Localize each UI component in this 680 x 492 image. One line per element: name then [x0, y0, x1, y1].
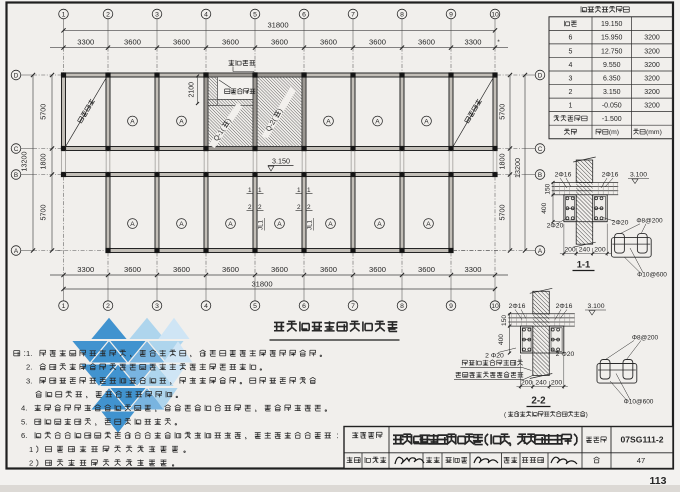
svg-text:2Φ16: 2Φ16: [602, 172, 619, 179]
svg-text:150: 150: [501, 315, 508, 326]
svg-text:(mm): (mm): [646, 129, 662, 136]
svg-text:1: 1: [258, 187, 262, 194]
svg-text:A: A: [424, 118, 429, 125]
svg-text:47: 47: [637, 456, 645, 465]
svg-text:13200: 13200: [20, 152, 29, 172]
svg-text:Φ10@600: Φ10@600: [624, 399, 654, 406]
svg-text:2 Φ20: 2 Φ20: [556, 351, 575, 358]
svg-text:JL1: JL1: [257, 219, 264, 230]
svg-text:200: 200: [564, 247, 576, 254]
svg-text:3300: 3300: [465, 38, 482, 47]
svg-text:A: A: [179, 221, 184, 228]
svg-text:A: A: [130, 118, 135, 125]
svg-text:5.: 5.: [21, 417, 27, 426]
svg-text:200: 200: [521, 380, 533, 387]
svg-text:6: 6: [569, 35, 573, 42]
svg-text:2: 2: [258, 204, 262, 211]
svg-text:3.150: 3.150: [603, 89, 621, 96]
svg-text:A: A: [377, 221, 382, 228]
svg-text:3600: 3600: [173, 38, 190, 47]
svg-text:3200: 3200: [644, 62, 660, 69]
svg-text:4: 4: [204, 11, 208, 18]
svg-text:6.350: 6.350: [603, 75, 621, 82]
svg-text:3300: 3300: [77, 265, 94, 274]
svg-text:5: 5: [253, 303, 257, 310]
svg-text:9: 9: [449, 303, 453, 310]
svg-text:D: D: [14, 72, 19, 79]
svg-text:1-1: 1-1: [577, 259, 591, 270]
svg-text:3600: 3600: [124, 38, 141, 47]
svg-text:Φ10@600: Φ10@600: [637, 272, 667, 279]
svg-text:3.100: 3.100: [587, 303, 604, 310]
svg-text:3600: 3600: [320, 265, 337, 274]
svg-text:3200: 3200: [644, 35, 660, 42]
svg-text:2: 2: [307, 204, 311, 211]
svg-text:3300: 3300: [465, 265, 482, 274]
svg-text:2Φ20: 2Φ20: [612, 220, 629, 227]
svg-text:3600: 3600: [124, 265, 141, 274]
svg-text:3: 3: [155, 11, 159, 18]
svg-text:2.: 2.: [26, 363, 32, 372]
svg-text:200: 200: [551, 380, 563, 387]
svg-text:31800: 31800: [267, 20, 288, 29]
svg-text:A: A: [228, 221, 233, 228]
svg-text:1: 1: [29, 445, 33, 454]
svg-text:3200: 3200: [644, 75, 660, 82]
svg-text:5700: 5700: [39, 104, 48, 120]
svg-text:10: 10: [491, 303, 499, 310]
svg-text:A: A: [277, 221, 282, 228]
svg-text:A: A: [375, 118, 380, 125]
svg-text:1: 1: [297, 187, 301, 194]
svg-text:2Φ16: 2Φ16: [555, 172, 572, 179]
svg-text:3200: 3200: [644, 48, 660, 55]
svg-text:): ): [586, 411, 588, 418]
svg-text:3.100: 3.100: [630, 172, 647, 179]
svg-text:4: 4: [204, 303, 208, 310]
svg-text:3600: 3600: [222, 38, 239, 47]
svg-text:C: C: [14, 146, 19, 153]
svg-text:A: A: [426, 221, 431, 228]
svg-text:200: 200: [594, 247, 606, 254]
svg-text:2: 2: [106, 11, 110, 18]
svg-text:5700: 5700: [498, 104, 507, 120]
svg-text:JL1: JL1: [306, 219, 313, 230]
svg-text:1: 1: [569, 102, 573, 109]
svg-text:Φ8@200: Φ8@200: [632, 335, 659, 342]
svg-text:5: 5: [569, 48, 573, 55]
svg-text:3.: 3.: [26, 376, 32, 385]
svg-text:3200: 3200: [644, 102, 660, 109]
svg-text:2: 2: [569, 89, 573, 96]
svg-text:1.: 1.: [26, 349, 32, 358]
svg-text:5: 5: [253, 11, 257, 18]
svg-text:6.: 6.: [21, 431, 27, 440]
svg-text:2100: 2100: [189, 82, 196, 98]
svg-text:3600: 3600: [271, 265, 288, 274]
svg-text:3600: 3600: [369, 38, 386, 47]
svg-text:2Φ20: 2Φ20: [547, 223, 564, 230]
svg-text:1800: 1800: [39, 154, 48, 170]
svg-text:4: 4: [569, 62, 573, 69]
svg-text:2: 2: [29, 458, 33, 467]
svg-text:2: 2: [106, 303, 110, 310]
svg-text:B: B: [14, 172, 18, 179]
svg-text:Φ8@200: Φ8@200: [636, 217, 663, 224]
svg-text:5700: 5700: [498, 205, 507, 221]
svg-text:A: A: [14, 248, 19, 255]
svg-text:2: 2: [297, 204, 301, 211]
svg-text:2-2: 2-2: [531, 396, 546, 407]
svg-text:6: 6: [302, 303, 306, 310]
svg-text:4.: 4.: [21, 404, 27, 413]
svg-text:6: 6: [302, 11, 306, 18]
svg-text:5700: 5700: [39, 205, 48, 221]
svg-text:3600: 3600: [222, 265, 239, 274]
svg-text:A: A: [328, 221, 333, 228]
svg-text:400: 400: [541, 202, 548, 213]
svg-text:B: B: [538, 172, 542, 179]
svg-text:A: A: [326, 118, 331, 125]
svg-text:1: 1: [62, 11, 66, 18]
svg-text:-0.050: -0.050: [602, 102, 622, 109]
svg-text:13200: 13200: [513, 158, 522, 178]
svg-text:(m): (m): [609, 129, 619, 136]
svg-text:-1.500: -1.500: [602, 116, 622, 123]
svg-text:A: A: [179, 118, 184, 125]
svg-text:2Φ16: 2Φ16: [509, 303, 526, 310]
svg-text:9.550: 9.550: [603, 62, 621, 69]
svg-text:113: 113: [650, 475, 667, 487]
svg-text:3600: 3600: [271, 38, 288, 47]
svg-text:3300: 3300: [77, 38, 94, 47]
svg-text:A: A: [130, 221, 135, 228]
svg-text:240: 240: [535, 380, 547, 387]
svg-text:1: 1: [62, 303, 66, 310]
svg-text:400: 400: [498, 334, 505, 345]
svg-text:10: 10: [491, 11, 499, 18]
svg-text:8: 8: [400, 11, 404, 18]
svg-text:3600: 3600: [320, 38, 337, 47]
svg-text:2Φ16: 2Φ16: [556, 303, 573, 310]
svg-text:07SG111-2: 07SG111-2: [620, 435, 663, 445]
svg-text:19.150: 19.150: [601, 21, 623, 28]
svg-text:3600: 3600: [418, 265, 435, 274]
svg-text:150: 150: [545, 183, 552, 194]
svg-text:9: 9: [449, 11, 453, 18]
svg-text:C: C: [538, 146, 543, 153]
svg-text:2 Φ20: 2 Φ20: [485, 353, 504, 360]
svg-text:1: 1: [307, 187, 311, 194]
svg-text:A: A: [538, 248, 543, 255]
svg-text:3600: 3600: [418, 38, 435, 47]
svg-text:240: 240: [579, 247, 591, 254]
svg-text:2: 2: [248, 204, 252, 211]
svg-text:3200: 3200: [644, 89, 660, 96]
svg-text:3600: 3600: [369, 265, 386, 274]
svg-text:3600: 3600: [173, 265, 190, 274]
svg-text:3.150: 3.150: [272, 157, 290, 166]
svg-text:31800: 31800: [251, 280, 272, 289]
svg-text:3: 3: [155, 303, 159, 310]
svg-text:3: 3: [569, 75, 573, 82]
svg-text:1: 1: [248, 187, 252, 194]
svg-text:12.750: 12.750: [601, 48, 623, 55]
svg-text:15.950: 15.950: [601, 35, 623, 42]
svg-text:7: 7: [351, 11, 355, 18]
svg-text:1800: 1800: [498, 154, 507, 170]
svg-text:D: D: [538, 72, 543, 79]
svg-text:8: 8: [400, 303, 404, 310]
svg-text:7: 7: [351, 303, 355, 310]
